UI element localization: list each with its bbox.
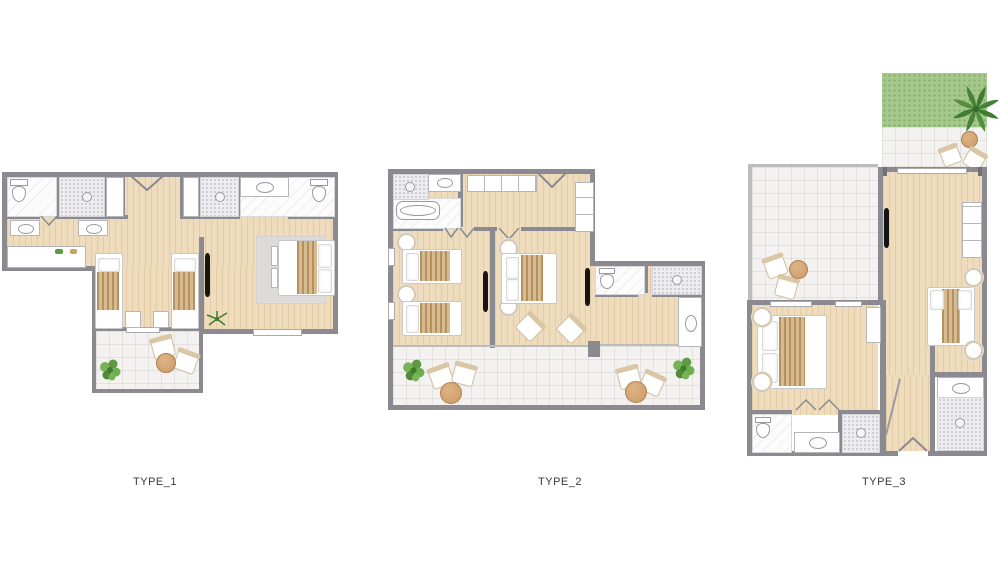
pillow <box>318 269 332 293</box>
tv-icon <box>884 208 889 248</box>
window <box>897 168 967 174</box>
bed-curtain <box>297 241 317 294</box>
wall-segment <box>490 227 495 348</box>
round-table <box>440 382 462 404</box>
blanket <box>97 272 119 310</box>
pillow <box>958 290 972 310</box>
terrace-railing <box>748 164 878 167</box>
sink-basin-icon <box>18 224 34 234</box>
door-swing-icon <box>537 173 567 189</box>
blanket <box>420 251 450 281</box>
door-swing-icon <box>795 398 817 411</box>
shower-drain-icon <box>215 192 225 202</box>
wardrobe <box>866 307 881 343</box>
bed-curtain <box>779 317 805 386</box>
sink-basin-icon <box>685 315 697 332</box>
plant-icon <box>97 357 123 383</box>
terrace-railing <box>748 164 752 305</box>
tub-basin-icon <box>400 205 436 216</box>
round-table <box>789 260 808 279</box>
pillow <box>506 279 519 301</box>
tv-icon <box>585 268 590 306</box>
double-bed <box>927 287 975 346</box>
bed-curtain <box>521 255 543 301</box>
vanity-sink <box>240 177 289 197</box>
toilet-icon <box>310 179 328 186</box>
wall-segment <box>199 237 204 329</box>
window <box>835 301 862 307</box>
twin-bed <box>402 249 462 284</box>
shower-drain-icon <box>955 418 965 428</box>
tv-icon <box>205 253 210 297</box>
twin-bed <box>95 253 123 329</box>
wall-segment <box>92 389 203 393</box>
wall-segment <box>199 331 203 393</box>
bench <box>271 246 278 266</box>
plan-label: TYPE_2 <box>515 476 605 488</box>
toilet-icon <box>10 179 28 186</box>
closet-shelf <box>575 182 594 232</box>
pouf <box>752 307 772 327</box>
nightstand <box>153 311 169 328</box>
vanity-sink <box>428 174 461 192</box>
bench <box>271 268 278 288</box>
palm-tree-icon <box>952 84 1000 134</box>
double-bed <box>278 240 335 296</box>
pillow <box>930 290 944 310</box>
pouf <box>964 341 983 360</box>
terrace-railing <box>393 345 588 347</box>
shower-drain-icon <box>672 275 682 285</box>
vanity-sink <box>794 432 840 453</box>
double-bed <box>501 253 557 304</box>
wardrobe <box>106 177 124 217</box>
door-swing-icon <box>40 216 58 226</box>
bowl-icon <box>70 249 77 254</box>
floorplan-sheet: TYPE_1 <box>0 0 1000 563</box>
vanity-sink <box>678 297 702 347</box>
pillow <box>406 253 419 281</box>
bathtub <box>396 201 440 220</box>
plant-icon <box>205 309 229 329</box>
door-swing-icon <box>898 437 928 452</box>
sink-basin-icon <box>809 437 827 449</box>
wall-segment <box>878 167 883 305</box>
vanity-sink <box>78 220 108 236</box>
door-swing-icon <box>444 228 459 238</box>
shelf-unit <box>962 202 982 258</box>
wall-segment <box>928 451 987 456</box>
wardrobe <box>467 175 537 192</box>
twin-bed <box>171 253 199 329</box>
vanity-sink <box>937 377 984 399</box>
window <box>388 248 395 266</box>
pillow <box>506 257 519 279</box>
terrace-floor <box>752 167 878 305</box>
shower-drain-icon <box>856 428 866 438</box>
window <box>770 301 812 307</box>
window <box>253 329 302 336</box>
twin-bed <box>402 301 462 336</box>
blanket <box>420 303 450 333</box>
round-table <box>625 381 647 403</box>
wall-segment <box>388 405 705 410</box>
door-swing-icon <box>459 228 475 238</box>
window <box>388 302 395 320</box>
shower-drain-icon <box>405 182 415 192</box>
plant-icon <box>55 249 63 254</box>
pillow <box>174 258 196 272</box>
tv-icon <box>483 271 488 312</box>
vanity-sink <box>10 220 40 236</box>
door-swing-icon <box>818 398 840 411</box>
wardrobe <box>183 177 199 217</box>
pouf <box>964 268 983 287</box>
sink-basin-icon <box>952 383 970 394</box>
shower-drain-icon <box>82 192 92 202</box>
sink-basin-icon <box>256 182 274 193</box>
nightstand <box>125 311 141 328</box>
wall-segment <box>588 341 600 357</box>
pillow <box>318 244 332 268</box>
pillow <box>98 258 120 272</box>
wall-segment <box>930 343 935 455</box>
round-table <box>156 353 176 373</box>
sink-basin-icon <box>437 178 453 188</box>
plan-label: TYPE_3 <box>839 476 929 488</box>
pouf <box>752 372 772 392</box>
plant-icon <box>670 355 697 382</box>
plan-label: TYPE_1 <box>110 476 200 488</box>
plant-icon <box>400 357 427 384</box>
blanket <box>173 272 195 310</box>
pillow <box>406 305 419 333</box>
sink-basin-icon <box>86 224 102 234</box>
door-swing-icon <box>130 176 164 192</box>
